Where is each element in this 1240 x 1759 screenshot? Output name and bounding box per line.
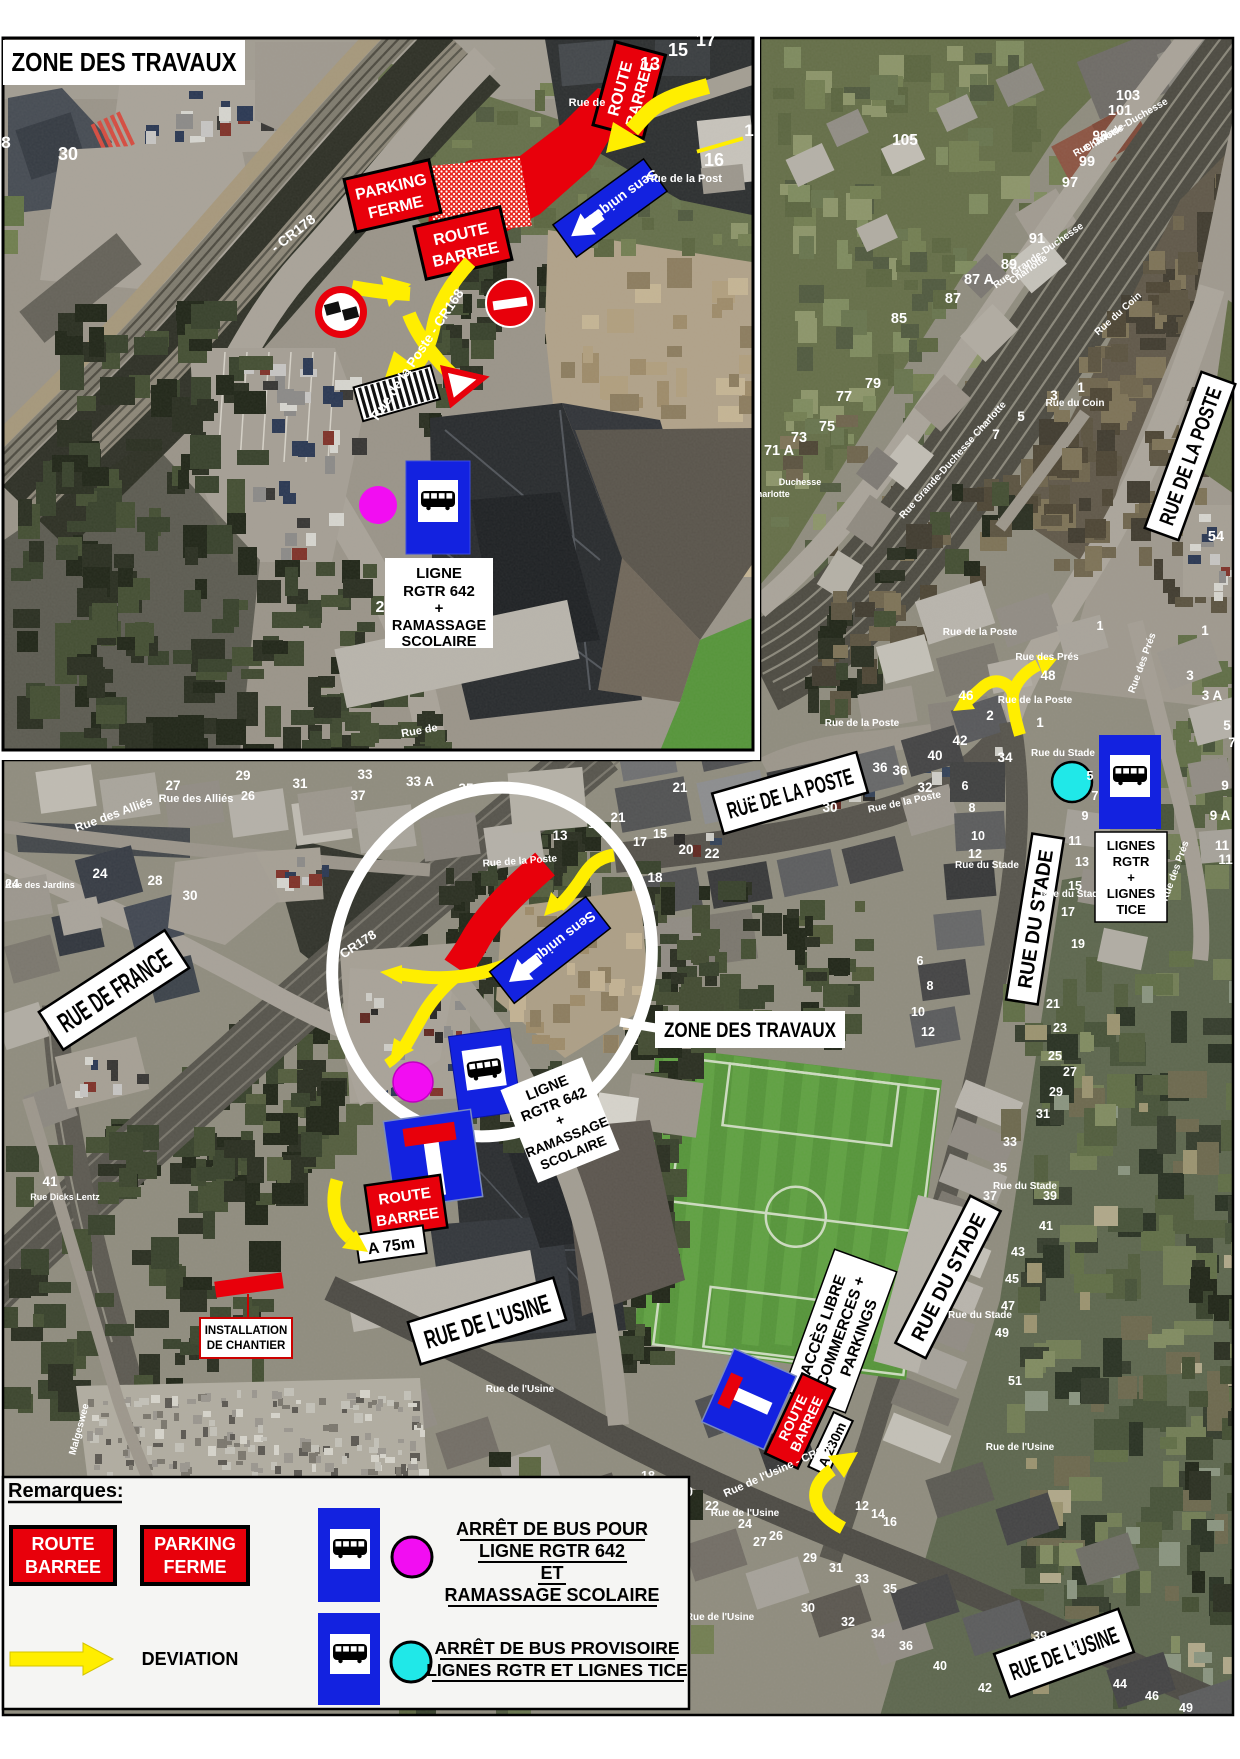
svg-text:79: 79 xyxy=(865,376,881,392)
svg-text:33: 33 xyxy=(1003,1135,1017,1149)
svg-text:21: 21 xyxy=(1046,997,1060,1011)
svg-text:97: 97 xyxy=(1062,175,1078,191)
svg-text:13: 13 xyxy=(552,828,568,843)
svg-text:5: 5 xyxy=(1223,718,1231,733)
svg-text:5: 5 xyxy=(1017,409,1025,424)
svg-text:22: 22 xyxy=(704,846,719,861)
svg-text:SCOLAIRE: SCOLAIRE xyxy=(402,634,477,650)
svg-text:Rue de la Poste: Rue de la Poste xyxy=(825,718,900,729)
svg-text:22: 22 xyxy=(705,1499,719,1513)
svg-text:Rue de la Poste: Rue de la Poste xyxy=(998,695,1073,706)
svg-text:14: 14 xyxy=(871,1507,885,1521)
svg-text:24: 24 xyxy=(738,1517,752,1531)
svg-text:TICE: TICE xyxy=(1116,902,1146,917)
svg-text:Rue Dicks Lentz: Rue Dicks Lentz xyxy=(30,1192,100,1202)
svg-text:24: 24 xyxy=(92,866,108,881)
svg-text:17: 17 xyxy=(696,30,716,50)
svg-text:39: 39 xyxy=(1043,1189,1057,1203)
svg-text:24: 24 xyxy=(5,877,19,891)
svg-text:30: 30 xyxy=(182,888,197,903)
svg-text:LIGNE RGTR 642: LIGNE RGTR 642 xyxy=(479,1541,625,1561)
svg-text:41: 41 xyxy=(1039,1219,1053,1233)
svg-text:43: 43 xyxy=(1011,1245,1025,1259)
svg-text:15: 15 xyxy=(653,827,667,841)
svg-text:3: 3 xyxy=(1050,388,1058,403)
svg-text:RGTR 642: RGTR 642 xyxy=(403,583,475,600)
svg-text:26: 26 xyxy=(737,790,753,805)
svg-text:12: 12 xyxy=(968,847,982,861)
svg-text:41: 41 xyxy=(42,1174,58,1189)
svg-text:51: 51 xyxy=(1008,1374,1022,1388)
svg-text:2: 2 xyxy=(986,708,994,723)
svg-text:12: 12 xyxy=(921,1025,935,1039)
svg-text:46: 46 xyxy=(1145,1689,1159,1703)
svg-text:33: 33 xyxy=(855,1572,869,1586)
svg-text:16: 16 xyxy=(704,150,724,170)
svg-text:32: 32 xyxy=(841,1615,855,1629)
svg-text:1: 1 xyxy=(1201,623,1209,638)
svg-text:40: 40 xyxy=(927,748,942,763)
svg-text:35: 35 xyxy=(458,781,474,796)
svg-text:15: 15 xyxy=(1068,879,1082,893)
svg-text:11: 11 xyxy=(588,816,603,831)
svg-text:27: 27 xyxy=(753,1535,767,1549)
svg-text:Rue de la Post: Rue de la Post xyxy=(646,173,722,185)
svg-text:1: 1 xyxy=(1036,715,1044,730)
svg-text:87: 87 xyxy=(945,291,961,307)
svg-text:16: 16 xyxy=(883,1515,897,1529)
svg-text:DEVIATION: DEVIATION xyxy=(142,1649,239,1669)
svg-text:Rue des Prés: Rue des Prés xyxy=(1015,652,1079,663)
svg-text:89: 89 xyxy=(1001,257,1017,273)
svg-text:29: 29 xyxy=(1049,1085,1063,1099)
svg-text:36: 36 xyxy=(892,763,908,778)
svg-text:5: 5 xyxy=(1087,769,1094,783)
svg-text:49: 49 xyxy=(995,1326,1009,1340)
svg-text:26: 26 xyxy=(241,789,255,803)
svg-text:99: 99 xyxy=(1079,154,1095,170)
svg-text:35: 35 xyxy=(883,1582,897,1596)
svg-text:Rue de l'Usine: Rue de l'Usine xyxy=(986,1442,1055,1453)
svg-text:31: 31 xyxy=(1036,1107,1050,1121)
svg-text:35: 35 xyxy=(993,1161,1007,1175)
svg-text:+: + xyxy=(1127,870,1135,885)
svg-text:FERME: FERME xyxy=(164,1557,227,1577)
svg-text:34: 34 xyxy=(997,750,1013,765)
svg-text:21: 21 xyxy=(610,810,626,825)
svg-text:Rue de la Poste: Rue de la Poste xyxy=(943,627,1018,638)
svg-text:PARKING: PARKING xyxy=(154,1534,236,1554)
svg-text:33 A: 33 A xyxy=(406,774,434,789)
svg-text:2: 2 xyxy=(376,599,385,616)
svg-text:27: 27 xyxy=(165,778,180,793)
svg-text:Rue de l'Usine: Rue de l'Usine xyxy=(486,1384,555,1395)
svg-text:99: 99 xyxy=(1092,128,1107,143)
svg-text:91: 91 xyxy=(1029,231,1045,247)
svg-text:30: 30 xyxy=(58,144,78,164)
svg-text:INSTALLATION: INSTALLATION xyxy=(205,1325,288,1337)
svg-text:31: 31 xyxy=(292,776,308,791)
svg-text:8: 8 xyxy=(1,133,10,152)
svg-text:ARRÊT DE BUS POUR: ARRÊT DE BUS POUR xyxy=(456,1518,648,1539)
svg-text:75: 75 xyxy=(819,419,835,435)
svg-text:2: 2 xyxy=(627,857,634,871)
svg-text:36: 36 xyxy=(872,760,888,775)
svg-text:9: 9 xyxy=(1221,778,1229,793)
svg-text:41: 41 xyxy=(1071,1641,1085,1655)
svg-text:9 A: 9 A xyxy=(1210,808,1231,823)
svg-text:8: 8 xyxy=(927,979,934,993)
svg-text:32: 32 xyxy=(917,780,932,795)
svg-text:29: 29 xyxy=(235,768,250,783)
svg-text:105: 105 xyxy=(892,132,918,149)
svg-text:10: 10 xyxy=(911,1005,925,1019)
svg-text:29: 29 xyxy=(803,1551,817,1565)
svg-text:71 A: 71 A xyxy=(764,443,795,459)
svg-text:20: 20 xyxy=(678,842,693,857)
svg-text:31: 31 xyxy=(829,1561,843,1575)
svg-text:12: 12 xyxy=(855,1499,869,1513)
svg-text:17: 17 xyxy=(1061,905,1075,919)
svg-text:RGTR: RGTR xyxy=(1113,854,1150,869)
svg-text:11: 11 xyxy=(1068,834,1081,848)
svg-text:LIGNE: LIGNE xyxy=(416,565,462,582)
svg-text:6: 6 xyxy=(962,779,969,793)
svg-text:87 A: 87 A xyxy=(964,272,995,288)
svg-text:7: 7 xyxy=(992,427,1000,442)
svg-text:LIGNES RGTR ET LIGNES TICE: LIGNES RGTR ET LIGNES TICE xyxy=(426,1660,688,1680)
svg-text:3: 3 xyxy=(1186,668,1194,683)
svg-text:7: 7 xyxy=(1092,789,1099,803)
svg-text:10: 10 xyxy=(971,829,985,843)
svg-text:ZONE DES TRAVAUX: ZONE DES TRAVAUX xyxy=(664,1019,836,1042)
svg-text:37: 37 xyxy=(983,1189,997,1203)
svg-text:1: 1 xyxy=(744,121,753,140)
svg-text:46: 46 xyxy=(958,688,974,703)
svg-text:37: 37 xyxy=(350,788,365,803)
svg-text:27: 27 xyxy=(1063,1065,1077,1079)
svg-text:ZONE DES TRAVAUX: ZONE DES TRAVAUX xyxy=(12,47,238,77)
svg-text:15: 15 xyxy=(668,40,688,60)
svg-text:28: 28 xyxy=(147,873,163,888)
svg-text:RAMASSAGE SCOLAIRE: RAMASSAGE SCOLAIRE xyxy=(444,1585,659,1605)
svg-text:49: 49 xyxy=(1179,1701,1193,1715)
svg-text:Rue des Alliés: Rue des Alliés xyxy=(159,793,234,805)
svg-text:6: 6 xyxy=(917,954,924,968)
svg-text:Rue du Stade: Rue du Stade xyxy=(955,860,1019,871)
svg-text:Rue de l'Usine: Rue de l'Usine xyxy=(686,1612,755,1623)
svg-text:7: 7 xyxy=(1228,735,1236,750)
svg-text:1: 1 xyxy=(1097,619,1104,633)
svg-text:85: 85 xyxy=(891,311,907,327)
svg-text:ET: ET xyxy=(540,1563,563,1583)
svg-text:9: 9 xyxy=(1082,809,1089,823)
svg-text:34: 34 xyxy=(871,1627,885,1641)
svg-text:44: 44 xyxy=(1113,1677,1127,1691)
svg-text:17: 17 xyxy=(633,835,647,849)
svg-text:21: 21 xyxy=(672,780,688,795)
svg-text:48: 48 xyxy=(1040,668,1056,683)
svg-text:45: 45 xyxy=(1005,1272,1019,1286)
svg-text:13: 13 xyxy=(640,54,660,74)
svg-text:23: 23 xyxy=(1053,1021,1067,1035)
svg-text:Duchesse: Duchesse xyxy=(779,477,822,487)
svg-text:18: 18 xyxy=(647,870,663,885)
svg-text:+: + xyxy=(435,600,444,617)
svg-text:36: 36 xyxy=(899,1639,913,1653)
svg-text:103: 103 xyxy=(1116,88,1140,104)
svg-text:19: 19 xyxy=(1071,937,1085,951)
svg-text:Remarques:: Remarques: xyxy=(8,1480,124,1502)
svg-text:13: 13 xyxy=(1075,855,1089,869)
svg-text:ROUTE: ROUTE xyxy=(32,1534,95,1554)
svg-text:DE CHANTIER: DE CHANTIER xyxy=(207,1340,286,1352)
svg-text:77: 77 xyxy=(836,389,852,405)
svg-text:33: 33 xyxy=(357,767,373,782)
svg-text:RAMASSAGE: RAMASSAGE xyxy=(392,618,487,634)
svg-text:42: 42 xyxy=(952,733,967,748)
svg-text:3 A: 3 A xyxy=(1202,688,1223,703)
svg-text:8: 8 xyxy=(969,801,976,815)
svg-text:39: 39 xyxy=(1033,1629,1047,1643)
svg-text:Rue du Stade: Rue du Stade xyxy=(1031,748,1095,759)
svg-text:LIGNES: LIGNES xyxy=(1107,838,1156,853)
svg-text:BARREE: BARREE xyxy=(25,1557,101,1577)
svg-text:54: 54 xyxy=(1208,529,1224,545)
svg-text:40: 40 xyxy=(933,1659,947,1673)
svg-text:26: 26 xyxy=(769,1529,783,1543)
svg-text:30: 30 xyxy=(822,800,837,815)
svg-text:101: 101 xyxy=(1108,103,1132,119)
svg-text:30: 30 xyxy=(801,1601,815,1615)
svg-text:ARRÊT DE BUS PROVISOIRE: ARRÊT DE BUS PROVISOIRE xyxy=(434,1637,679,1658)
svg-text:42: 42 xyxy=(978,1681,992,1695)
svg-text:1: 1 xyxy=(1077,380,1085,395)
svg-text:Rue de: Rue de xyxy=(569,97,606,109)
svg-text:11: 11 xyxy=(1215,838,1230,853)
svg-text:LIGNES: LIGNES xyxy=(1107,886,1156,901)
svg-text:47: 47 xyxy=(1001,1299,1015,1313)
svg-text:25: 25 xyxy=(1048,1049,1062,1063)
svg-text:11 A: 11 A xyxy=(1218,852,1240,867)
